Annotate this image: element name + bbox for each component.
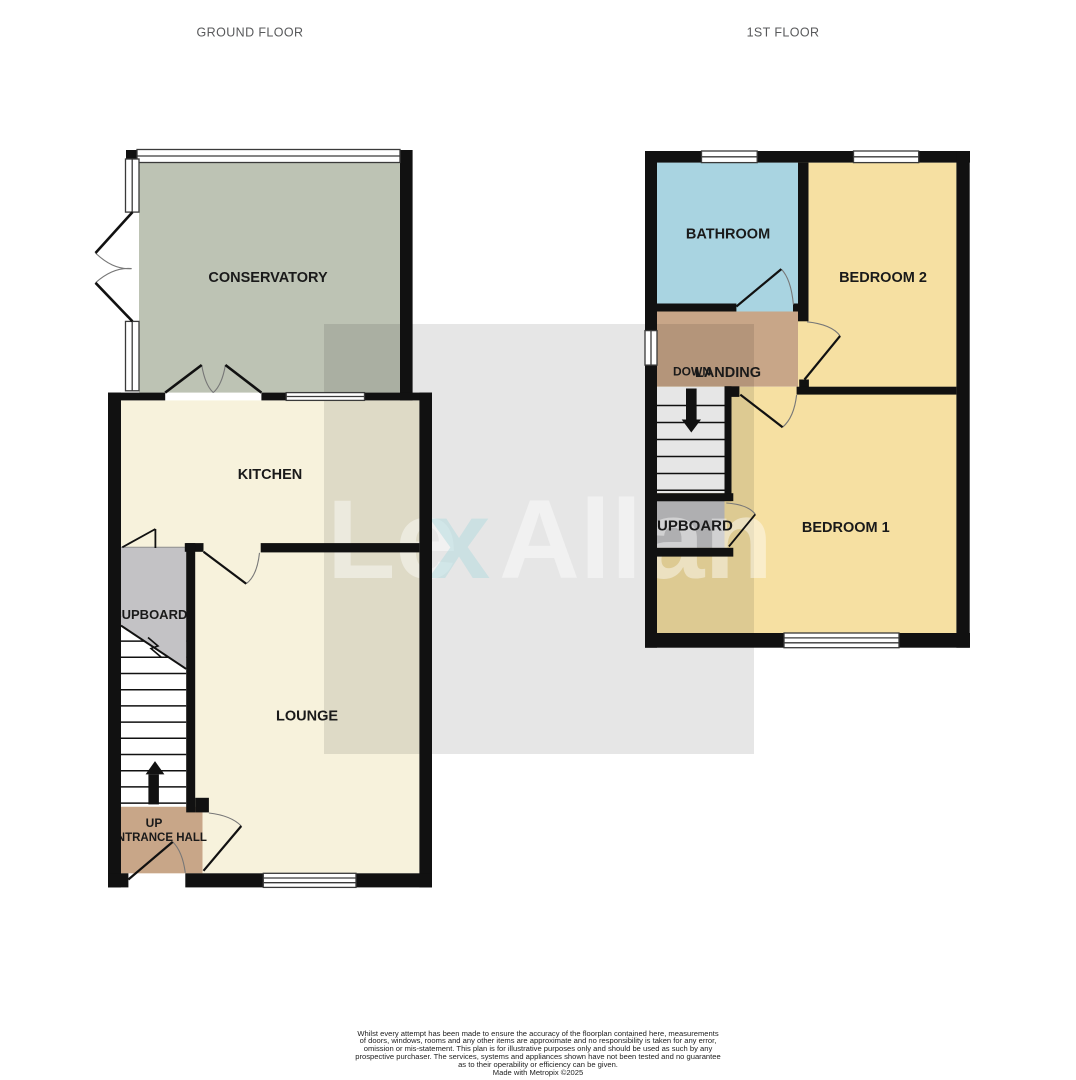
svg-text:1ST FLOOR: 1ST FLOOR: [747, 26, 820, 40]
svg-text:CONSERVATORY: CONSERVATORY: [208, 270, 328, 286]
svg-text:KITCHEN: KITCHEN: [238, 467, 302, 483]
svg-text:x: x: [428, 477, 490, 602]
svg-text:LANDING: LANDING: [695, 365, 761, 381]
svg-text:LOUNGE: LOUNGE: [276, 709, 338, 725]
svg-text:ENTRANCE HALL: ENTRANCE HALL: [109, 832, 207, 844]
svg-text:BEDROOM 2: BEDROOM 2: [839, 270, 927, 286]
svg-text:UP: UP: [146, 816, 163, 830]
svg-text:GROUND FLOOR: GROUND FLOOR: [197, 26, 304, 40]
svg-text:CUPBOARD: CUPBOARD: [112, 607, 187, 622]
svg-text:BATHROOM: BATHROOM: [686, 227, 770, 243]
svg-text:CUPBOARD: CUPBOARD: [646, 518, 733, 535]
svg-text:BEDROOM 1: BEDROOM 1: [802, 520, 890, 536]
